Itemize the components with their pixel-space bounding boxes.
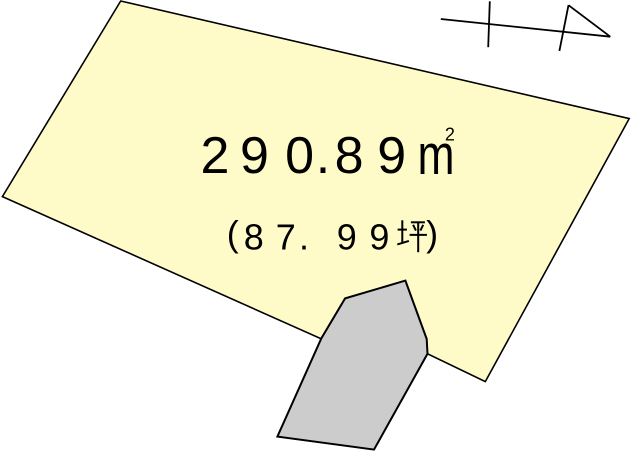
- svg-text:7: 7: [276, 217, 296, 258]
- svg-text:9: 9: [377, 127, 406, 185]
- svg-text:9: 9: [240, 127, 269, 185]
- svg-text:2: 2: [201, 127, 230, 185]
- svg-text:9: 9: [337, 217, 357, 258]
- svg-text:2: 2: [445, 125, 455, 145]
- svg-text:(: (: [227, 213, 239, 254]
- svg-text:8: 8: [335, 127, 364, 185]
- svg-text:.: .: [316, 127, 330, 185]
- svg-text:8: 8: [244, 217, 264, 258]
- svg-text:0: 0: [285, 127, 314, 185]
- svg-text:.: .: [299, 217, 309, 258]
- svg-text:): ): [426, 213, 438, 254]
- svg-text:9: 9: [369, 217, 389, 258]
